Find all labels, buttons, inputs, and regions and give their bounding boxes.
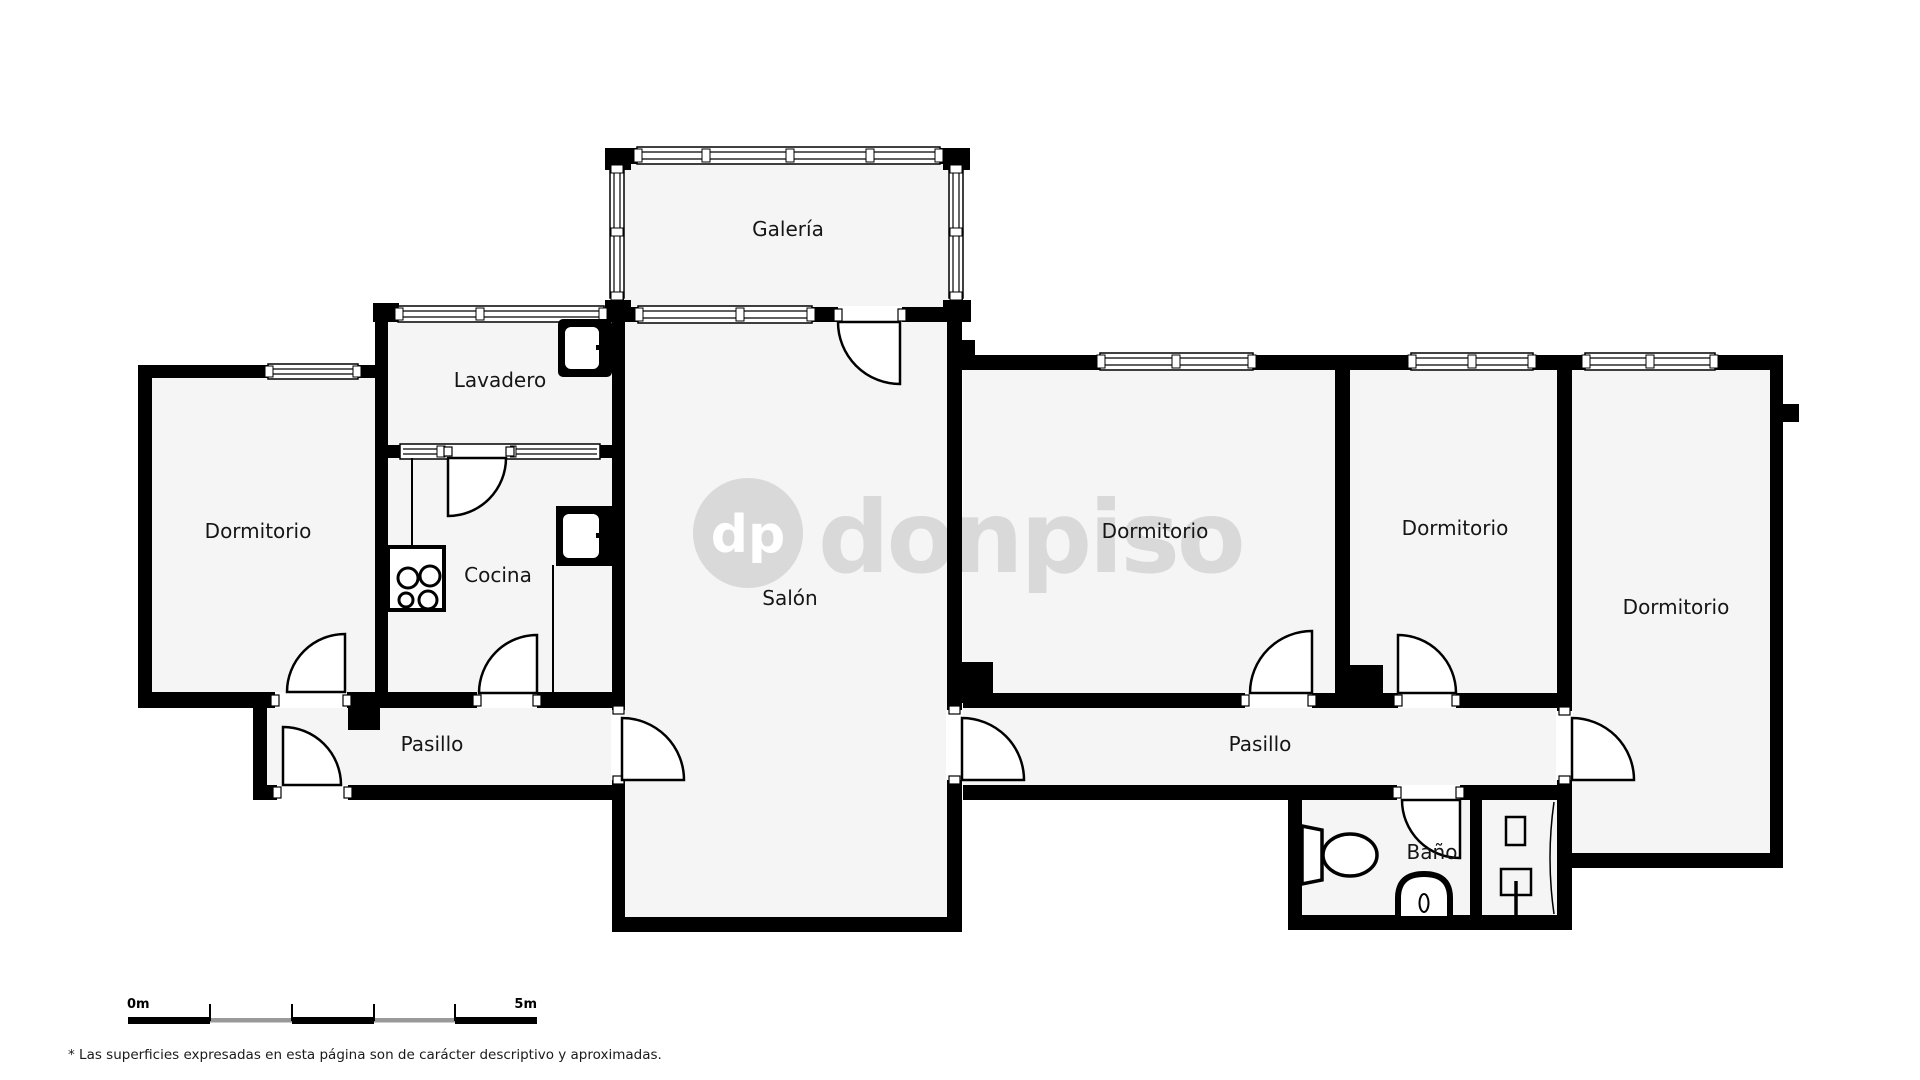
floor-plan-page: dp donpiso	[0, 0, 1920, 1080]
sink-icon	[558, 319, 612, 377]
wall	[1335, 370, 1350, 693]
window	[1582, 353, 1718, 370]
label-pasillo1: Pasillo	[401, 732, 464, 756]
label-dormitorio1: Dormitorio	[205, 519, 312, 543]
wall	[612, 322, 625, 932]
wall	[253, 693, 267, 800]
door-opening	[444, 445, 514, 458]
door-opening	[1393, 785, 1464, 800]
stove-4-burners-icon	[388, 547, 444, 610]
window	[635, 306, 815, 323]
door-opening	[273, 785, 352, 800]
wall	[1557, 785, 1572, 930]
sink-icon	[556, 506, 612, 566]
wall	[1288, 915, 1572, 930]
label-dormitorio3: Dormitorio	[1402, 516, 1509, 540]
floor-plan: dp donpiso	[0, 0, 1920, 1080]
wall	[138, 365, 152, 708]
door-opening	[946, 706, 963, 784]
footnote-disclaimer: * Las superficies expresadas en esta pág…	[68, 1047, 662, 1063]
door-opening	[1394, 692, 1460, 708]
label-lavadero: Lavadero	[454, 368, 547, 392]
door-opening	[271, 692, 351, 708]
wall	[947, 322, 962, 932]
wall-pillar	[1350, 665, 1383, 707]
wall-pillar	[962, 662, 993, 703]
door-opening	[1556, 707, 1573, 784]
scale-segment	[374, 1018, 455, 1023]
wall-pillar	[348, 692, 380, 730]
label-dormitorio4: Dormitorio	[1623, 595, 1730, 619]
label-galeria: Galería	[752, 217, 824, 241]
scale-end-label: 5m	[514, 997, 537, 1012]
label-cocina: Cocina	[464, 563, 532, 587]
scale-segment	[292, 1017, 374, 1024]
wall	[375, 303, 388, 708]
wall	[1470, 800, 1482, 915]
wall-pillar	[1783, 404, 1799, 422]
door-opening	[473, 692, 541, 708]
scale-segment	[128, 1017, 210, 1024]
window	[265, 364, 361, 379]
label-salon: Salón	[762, 586, 817, 610]
scale-bar: 0m 5m	[127, 997, 537, 1024]
wall	[1288, 785, 1302, 930]
window	[949, 165, 963, 300]
window	[1408, 353, 1536, 370]
label-pasillo2: Pasillo	[1229, 732, 1292, 756]
scale-start-label: 0m	[127, 997, 150, 1012]
watermark-initials: dp	[711, 505, 785, 565]
door-opening	[834, 306, 906, 323]
floor-salon	[625, 322, 947, 917]
wall	[1557, 853, 1783, 868]
scale-segment	[455, 1017, 537, 1024]
label-bano: Baño	[1407, 840, 1458, 864]
bidet-icon	[1398, 874, 1450, 916]
scale-segment	[210, 1018, 292, 1023]
door-opening	[1241, 692, 1316, 708]
window	[1097, 353, 1256, 370]
wall	[963, 785, 1557, 800]
label-dormitorio2: Dormitorio	[1102, 519, 1209, 543]
window	[610, 165, 624, 300]
window	[634, 147, 943, 164]
wall	[612, 917, 962, 932]
wall	[1770, 362, 1783, 868]
